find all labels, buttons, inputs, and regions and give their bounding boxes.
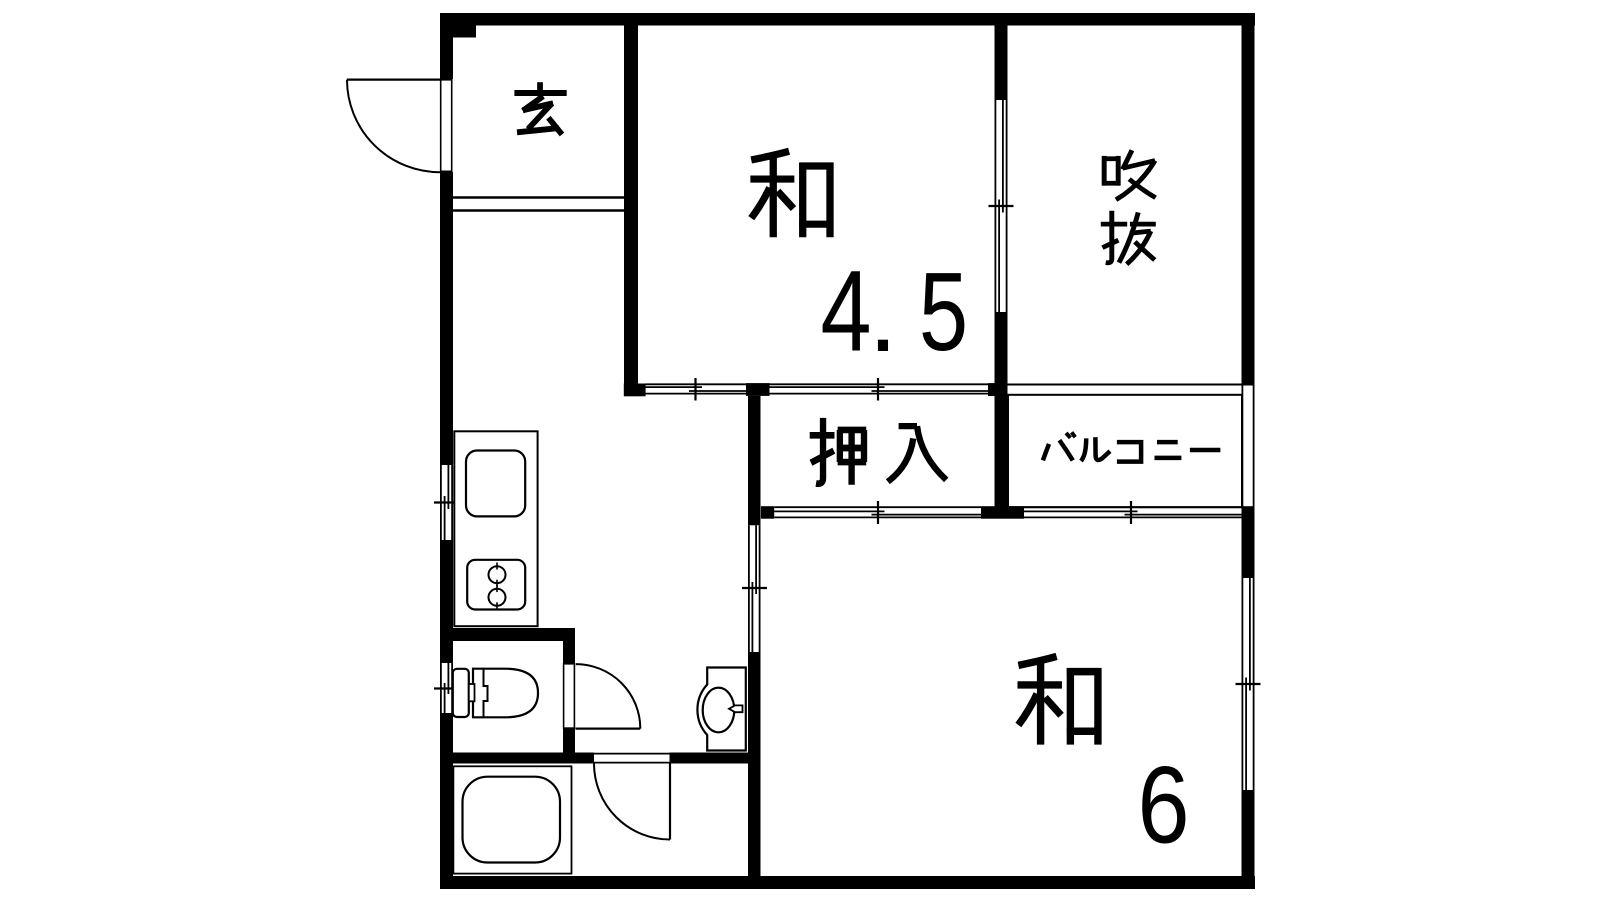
svg-text:6: 6 (1137, 744, 1189, 866)
svg-text:4: 4 (821, 248, 872, 376)
svg-text:.: . (868, 256, 897, 374)
svg-text:5: 5 (919, 250, 968, 374)
